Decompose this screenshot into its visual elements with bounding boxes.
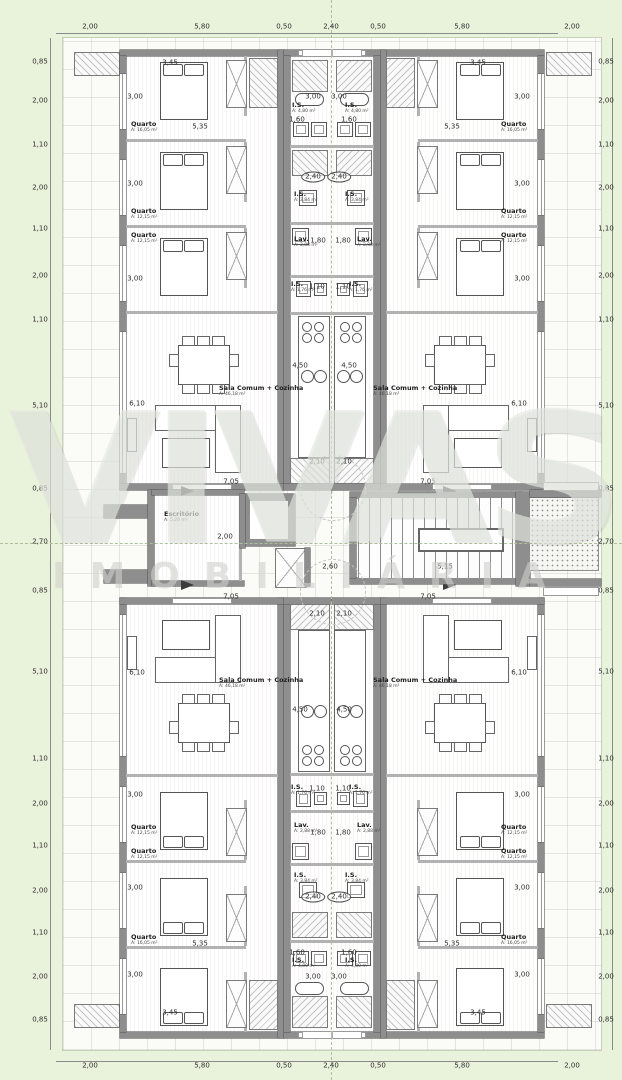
dimension-label: 0,50 <box>276 1063 292 1070</box>
wall <box>530 579 601 586</box>
bathroom-core-graphic <box>332 50 380 490</box>
bathroom-core-graphic <box>284 50 332 490</box>
terrace <box>530 498 598 570</box>
wall <box>332 940 374 943</box>
dimension-label: 2,00 <box>564 1063 580 1070</box>
kitchen-sink-icon <box>350 705 363 718</box>
window <box>120 73 126 130</box>
unit-right-mirrored <box>332 50 544 490</box>
tv-cabinet-icon <box>127 636 137 670</box>
pillow-icon <box>163 64 183 76</box>
wall <box>104 570 150 583</box>
wall <box>290 863 332 866</box>
wall <box>380 50 386 490</box>
toilet-icon <box>299 190 317 206</box>
dimension-label: 1,10 <box>32 317 48 324</box>
hatch-area <box>290 458 330 484</box>
window <box>120 786 126 843</box>
wardrobe-icon <box>226 980 247 1028</box>
wall <box>290 312 332 315</box>
rug-icon <box>162 620 210 650</box>
wall <box>350 498 356 578</box>
dining-table-icon <box>434 703 486 743</box>
planter <box>74 52 120 76</box>
wall <box>350 578 522 584</box>
window <box>120 872 126 929</box>
wall <box>418 225 538 228</box>
apartment-graphic <box>120 598 284 1038</box>
planter <box>546 1004 592 1028</box>
wall <box>332 145 374 148</box>
building-bottom-mirrored <box>120 598 544 1038</box>
dimension-label: 0,85 <box>32 1017 48 1024</box>
pillow-icon <box>163 240 183 252</box>
window <box>538 245 544 302</box>
wall <box>530 490 601 497</box>
kitchen-sink-icon <box>350 370 363 383</box>
wall <box>386 311 538 314</box>
wall <box>290 940 332 943</box>
sink-icon <box>311 122 327 137</box>
chair-icon <box>182 694 195 704</box>
floor-plan: 2,005,800,502,400,505,802,002,005,800,50… <box>0 0 622 1080</box>
wall <box>332 773 374 776</box>
wall <box>120 1032 284 1038</box>
window <box>538 159 544 216</box>
wardrobe-icon <box>417 146 438 194</box>
sink-icon <box>337 792 350 805</box>
wall <box>418 946 538 949</box>
pillow-icon <box>481 1012 501 1024</box>
wall <box>284 604 290 1032</box>
dimension-label: 5,80 <box>194 24 210 31</box>
wall <box>126 774 278 777</box>
washer-icon <box>292 228 309 245</box>
chair-icon <box>439 384 452 394</box>
pillow-icon <box>460 240 480 252</box>
bathtub-icon <box>336 60 372 92</box>
burner-icon <box>352 756 362 766</box>
shower-icon <box>336 912 372 938</box>
pillow-icon <box>460 64 480 76</box>
burner-icon <box>314 333 324 343</box>
chair-icon <box>454 384 467 394</box>
pillow-icon <box>163 836 183 848</box>
wall <box>240 494 245 548</box>
dimension-label: 2,00 <box>82 1063 98 1070</box>
bathtub-icon <box>292 996 328 1028</box>
pillow-icon <box>184 1012 204 1024</box>
apartment-graphic <box>380 50 544 490</box>
window <box>538 73 544 130</box>
burner-icon <box>340 322 350 332</box>
wall <box>380 50 544 56</box>
sofa-icon <box>423 615 449 683</box>
shower-icon <box>292 912 328 938</box>
sink-icon <box>314 283 327 296</box>
burner-icon <box>302 322 312 332</box>
rug-icon <box>162 438 210 468</box>
chair-icon <box>182 384 195 394</box>
bathroom-core-graphic <box>332 598 380 1038</box>
wall <box>516 492 530 586</box>
pillow-icon <box>184 154 204 166</box>
dimension-label: 2,00 <box>32 273 48 280</box>
wall <box>332 275 374 278</box>
window <box>538 614 544 757</box>
pillow-icon <box>184 240 204 252</box>
chair-icon <box>485 721 495 734</box>
middle-band <box>63 486 601 602</box>
pillow-icon <box>481 836 501 848</box>
bathtub-icon <box>336 996 372 1028</box>
dimension-label: 0,85 <box>32 486 48 493</box>
wall <box>418 860 538 863</box>
unit-right-mirrored <box>332 598 544 1038</box>
burner-icon <box>340 333 350 343</box>
burner-icon <box>340 745 350 755</box>
pillow-icon <box>184 64 204 76</box>
dimension-label: 5,10 <box>32 669 48 676</box>
wardrobe-icon <box>417 894 438 942</box>
dining-table-icon <box>434 345 486 385</box>
chair-icon <box>454 336 467 346</box>
wall <box>380 1032 544 1038</box>
wall <box>120 50 284 56</box>
entry-door <box>298 1032 324 1038</box>
wall <box>386 774 538 777</box>
pillow-icon <box>481 240 501 252</box>
wall <box>332 810 374 813</box>
chair-icon <box>169 721 179 734</box>
wall <box>290 222 332 225</box>
chair-icon <box>197 694 210 704</box>
building-top <box>120 50 544 490</box>
dimension-label: 2,00 <box>82 24 98 31</box>
burner-icon <box>352 322 362 332</box>
wall <box>332 312 374 315</box>
wall <box>332 222 374 225</box>
hatch-area <box>386 58 415 108</box>
entry-door <box>340 50 366 56</box>
door-arrow-icon <box>181 580 199 590</box>
dimension-label: 2,70 <box>32 539 48 546</box>
wall <box>126 225 246 228</box>
pillow-icon <box>163 922 183 934</box>
chair-icon <box>469 384 482 394</box>
bathtub-icon <box>340 93 369 106</box>
wall <box>126 311 278 314</box>
dimension-label: 5,80 <box>194 1063 210 1070</box>
kitchen-sink-icon <box>314 370 327 383</box>
dimension-label: 2,00 <box>32 974 48 981</box>
wall <box>290 810 332 813</box>
toilet-icon <box>296 281 311 297</box>
burner-icon <box>314 756 324 766</box>
sink-icon <box>293 951 309 966</box>
toilet-icon <box>347 882 365 898</box>
chair-icon <box>197 742 210 752</box>
unit-left <box>120 598 332 1038</box>
kitchen-sink-icon <box>301 705 314 718</box>
dimension-line-right <box>612 38 613 1050</box>
chair-icon <box>469 336 482 346</box>
window <box>120 614 126 757</box>
shower-icon <box>292 150 328 176</box>
sink-icon <box>293 122 309 137</box>
dimension-label: 5,80 <box>454 24 470 31</box>
shower-icon <box>336 150 372 176</box>
pillow-icon <box>460 154 480 166</box>
wardrobe-icon <box>417 60 438 108</box>
rug-icon <box>454 620 502 650</box>
burner-icon <box>340 756 350 766</box>
wall <box>284 56 290 484</box>
dimension-line-bottom <box>56 1061 558 1062</box>
apartment-graphic <box>380 598 544 1038</box>
kitchen-sink-icon <box>337 370 350 383</box>
wall <box>418 139 538 142</box>
hatch-area <box>334 458 374 484</box>
window <box>120 331 126 474</box>
window <box>120 245 126 302</box>
chair-icon <box>229 721 239 734</box>
window <box>538 872 544 929</box>
chair-icon <box>454 742 467 752</box>
pillow-icon <box>184 836 204 848</box>
wall <box>290 773 332 776</box>
window <box>120 159 126 216</box>
chair-icon <box>212 336 225 346</box>
wall <box>290 275 332 278</box>
dimension-label: 1,10 <box>32 930 48 937</box>
washer-icon <box>292 843 309 860</box>
dimension-line-left <box>50 38 51 1050</box>
pillow-icon <box>460 922 480 934</box>
wardrobe-icon <box>417 232 438 280</box>
chair-icon <box>469 742 482 752</box>
dimension-label: 0,85 <box>32 59 48 66</box>
chair-icon <box>485 354 495 367</box>
dimension-label: 1,10 <box>32 756 48 763</box>
chair-icon <box>197 384 210 394</box>
planter <box>546 52 592 76</box>
chair-icon <box>469 694 482 704</box>
chair-icon <box>425 721 435 734</box>
dimension-label: 5,10 <box>32 403 48 410</box>
dimension-label: 2,40 <box>323 24 339 31</box>
hatch-area <box>249 980 278 1030</box>
bathtub-icon <box>295 93 324 106</box>
shaft <box>275 548 307 588</box>
burner-icon <box>314 745 324 755</box>
wardrobe-icon <box>417 808 438 856</box>
dimension-label: 2,00 <box>32 888 48 895</box>
chair-icon <box>425 354 435 367</box>
wall <box>305 548 310 586</box>
dimension-label: 0,50 <box>370 24 386 31</box>
pillow-icon <box>163 1012 183 1024</box>
dimension-label: 1,10 <box>32 226 48 233</box>
wall <box>290 145 332 148</box>
entry-door <box>298 50 324 56</box>
chair-icon <box>439 742 452 752</box>
kitchen-sink-icon <box>337 705 350 718</box>
dimension-label: 1,10 <box>32 142 48 149</box>
apartment-graphic <box>120 50 284 490</box>
wall <box>148 490 154 586</box>
window <box>120 958 126 1015</box>
toilet-icon <box>347 190 365 206</box>
dimension-label: 0,50 <box>370 1063 386 1070</box>
stair-rail <box>418 528 504 552</box>
sink-icon <box>311 951 327 966</box>
planter <box>74 1004 120 1028</box>
dimension-label: 2,00 <box>564 24 580 31</box>
toilet-icon <box>353 281 368 297</box>
hatch-area <box>290 604 330 630</box>
pillow-icon <box>481 64 501 76</box>
wall <box>104 505 150 518</box>
pillow-icon <box>184 922 204 934</box>
unit-left <box>120 50 332 490</box>
bathtub-icon <box>295 982 324 995</box>
dimension-label: 2,00 <box>32 185 48 192</box>
burner-icon <box>302 745 312 755</box>
dimension-label: 5,80 <box>454 1063 470 1070</box>
hatch-area <box>386 980 415 1030</box>
chair-icon <box>439 694 452 704</box>
burner-icon <box>352 333 362 343</box>
burner-icon <box>352 745 362 755</box>
dimension-label: 0,50 <box>276 24 292 31</box>
elevator <box>243 494 295 546</box>
toilet-icon <box>299 882 317 898</box>
sofa-icon <box>423 405 449 473</box>
pillow-icon <box>460 1012 480 1024</box>
chair-icon <box>212 742 225 752</box>
sink-icon <box>355 122 371 137</box>
wardrobe-icon <box>226 146 247 194</box>
kitchen-sink-icon <box>314 705 327 718</box>
pillow-icon <box>481 922 501 934</box>
wardrobe-icon <box>226 60 247 108</box>
pillow-icon <box>163 154 183 166</box>
sink-icon <box>314 792 327 805</box>
dining-table-icon <box>178 345 230 385</box>
washer-icon <box>355 843 372 860</box>
entry-door <box>340 1032 366 1038</box>
chair-icon <box>182 336 195 346</box>
burner-icon <box>302 756 312 766</box>
tv-cabinet-icon <box>527 636 537 670</box>
pillow-icon <box>481 154 501 166</box>
toilet-icon <box>296 791 311 807</box>
dimension-label: 2,00 <box>32 98 48 105</box>
pillow-icon <box>460 836 480 848</box>
hatch-area <box>334 604 374 630</box>
chair-icon <box>229 354 239 367</box>
hatch-area <box>249 58 278 108</box>
bathtub-icon <box>340 982 369 995</box>
sink-icon <box>337 283 350 296</box>
sink-icon <box>337 122 353 137</box>
wall <box>380 598 386 1038</box>
window <box>538 958 544 1015</box>
window <box>538 331 544 474</box>
chair-icon <box>212 384 225 394</box>
window <box>538 786 544 843</box>
dimension-line-top <box>56 33 558 34</box>
floor <box>154 495 240 581</box>
railing <box>543 482 599 491</box>
kitchen-sink-icon <box>301 370 314 383</box>
burner-icon <box>314 322 324 332</box>
wardrobe-icon <box>226 232 247 280</box>
dimension-label: 2,40 <box>323 1063 339 1070</box>
dimension-label: 0,85 <box>32 588 48 595</box>
chair-icon <box>454 694 467 704</box>
sofa-icon <box>215 405 241 473</box>
dimension-label: 2,00 <box>32 801 48 808</box>
railing <box>543 587 599 596</box>
wardrobe-icon <box>417 980 438 1028</box>
tv-cabinet-icon <box>127 418 137 452</box>
wall <box>332 863 374 866</box>
dining-table-icon <box>178 703 230 743</box>
chair-icon <box>439 336 452 346</box>
sink-icon <box>337 951 353 966</box>
wall <box>374 604 380 1032</box>
wall <box>126 139 246 142</box>
wall <box>126 946 246 949</box>
wall <box>374 56 380 484</box>
chair-icon <box>212 694 225 704</box>
tv-cabinet-icon <box>527 418 537 452</box>
sink-icon <box>355 951 371 966</box>
dimension-label: 1,10 <box>32 843 48 850</box>
wall <box>126 860 246 863</box>
wardrobe-icon <box>226 808 247 856</box>
chair-icon <box>197 336 210 346</box>
chair-icon <box>182 742 195 752</box>
wardrobe-icon <box>226 894 247 942</box>
rug-icon <box>454 438 502 468</box>
washer-icon <box>355 228 372 245</box>
burner-icon <box>302 333 312 343</box>
toilet-icon <box>353 791 368 807</box>
bathtub-icon <box>292 60 328 92</box>
sofa-icon <box>215 615 241 683</box>
door-arrow-icon <box>181 486 199 496</box>
chair-icon <box>169 354 179 367</box>
bathroom-core-graphic <box>284 598 332 1038</box>
